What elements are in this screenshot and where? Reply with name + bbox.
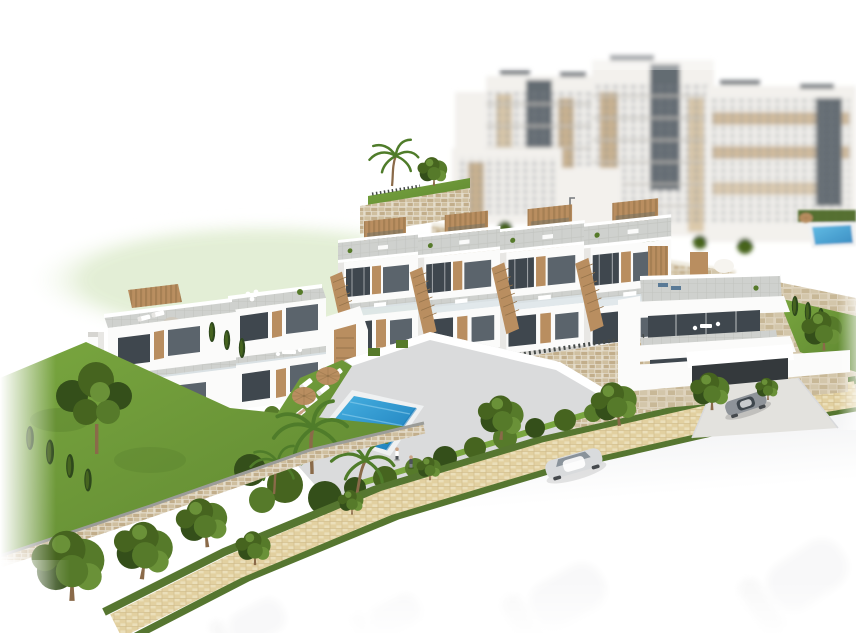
render-canvas: Aerial 3D render of a new-build resident… [0, 0, 856, 633]
architectural-render: Aerial 3D render of a new-build resident… [0, 0, 856, 633]
